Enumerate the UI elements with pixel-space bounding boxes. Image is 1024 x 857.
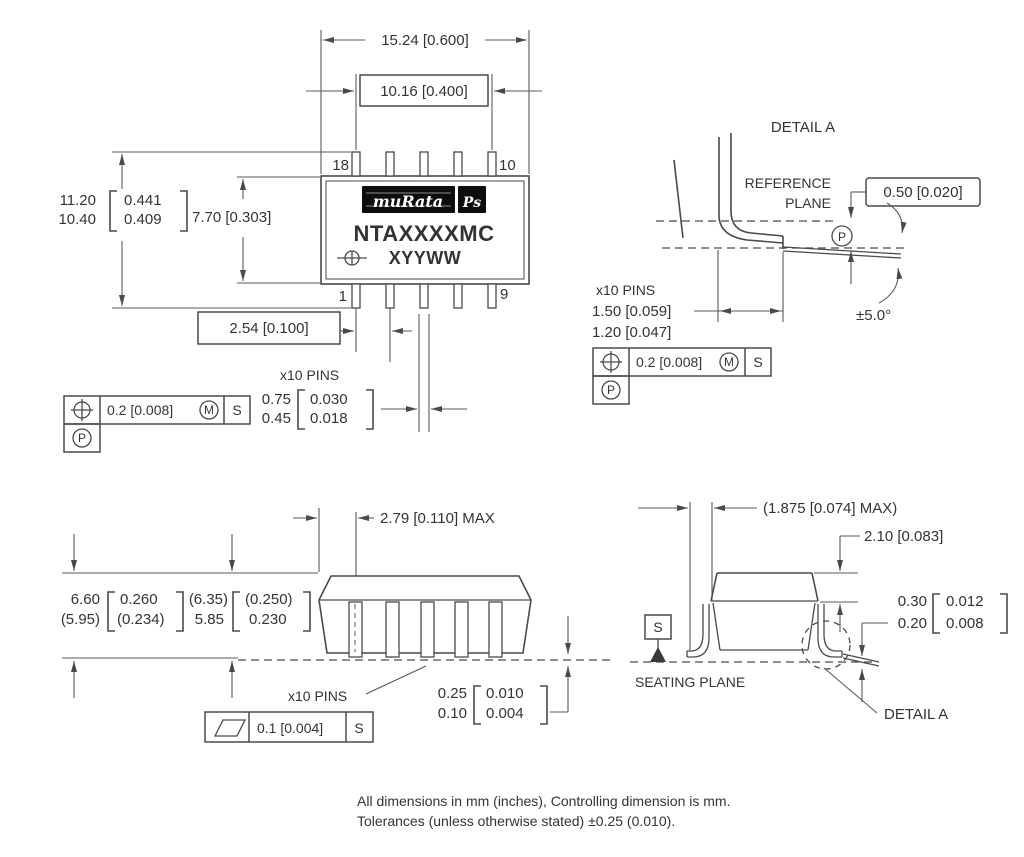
- dim-overall-height-in-min: 0.409: [124, 211, 162, 228]
- side-view-extension-lines: [690, 502, 858, 650]
- fcf-position-top-view: 0.2 [0.008] M S P: [64, 396, 250, 452]
- pin-number-9: 9: [500, 286, 508, 303]
- dim-total-mm-min: (5.95): [61, 611, 100, 628]
- dim-body-only-height: (6.35) 5.85 (0.250) 0.230: [189, 534, 310, 698]
- dim-edge-to-pin-label: 2.79 [0.110] MAX: [380, 510, 495, 527]
- front-view-extension-lines: [62, 508, 356, 658]
- pins-count-label: x10 PINS: [280, 367, 339, 383]
- fcf-tolerance: 0.2 [0.008]: [107, 402, 173, 418]
- dim-cap-height: 2.10 [0.083]: [840, 528, 943, 632]
- fcf-flatness: 0.1 [0.004] S: [205, 712, 373, 742]
- dim-total-in-max: 0.260: [120, 591, 158, 608]
- logo-suffix-text: Ps: [462, 195, 482, 211]
- dim-plane-offset-label: 0.50 [0.020]: [883, 184, 962, 201]
- dim-overall-height-mm-max: 11.20: [60, 192, 96, 209]
- fcf-flatness-datum: S: [354, 720, 363, 736]
- dim-overall-height-mm-min: 10.40: [58, 211, 96, 228]
- svg-text:P: P: [78, 431, 86, 445]
- detail-a-title: DETAIL A: [771, 119, 835, 136]
- dim-lead-thick-in-max: 0.012: [946, 593, 984, 610]
- dim-lead-thickness: 0.30 0.20 0.012 0.008: [862, 593, 1007, 702]
- drawing-notes: All dimensions in mm (inches), Controlli…: [357, 793, 730, 829]
- note-line-2: Tolerances (unless otherwise stated) ±0.…: [357, 813, 675, 829]
- datum-s-label: S: [653, 619, 662, 635]
- dim-standoff-in-max: 0.010: [486, 685, 524, 702]
- dim-overall-height-in-max: 0.441: [124, 192, 162, 209]
- dim-plane-offset: 0.50 [0.020]: [851, 178, 980, 284]
- svg-text:P: P: [838, 230, 846, 244]
- dim-foot-min-label: 1.20 [0.047]: [592, 324, 671, 341]
- package-dimension-drawing: muRata Ps NTAXXXXMC XYYWW 18 10 1 9 15.2…: [0, 0, 1024, 857]
- dim-pin-pitch: 2.54 [0.100]: [198, 312, 412, 344]
- detail-a-lead-geometry: [656, 133, 908, 258]
- dim-pin-width-in-max: 0.030: [310, 391, 348, 408]
- pin-number-18: 18: [332, 157, 349, 174]
- projected-tolerance-icon: P: [73, 429, 91, 447]
- seating-plane-label: SEATING PLANE: [635, 674, 745, 690]
- angle-tolerance-label: ±5.0°: [856, 307, 891, 324]
- dim-body-in-max: (0.250): [245, 591, 293, 608]
- marking-code: XYYWW: [389, 248, 462, 268]
- dim-overall-width-label: 15.24 [0.600]: [381, 32, 469, 49]
- dim-edge-to-pin: 2.79 [0.110] MAX: [293, 510, 495, 527]
- detail-a-reference: DETAIL A: [824, 668, 948, 723]
- projected-plane-icon: P: [832, 226, 852, 246]
- side-view-gullwing-pins: [687, 604, 879, 666]
- dim-total-in-min: (0.234): [117, 611, 165, 628]
- fcf-position-detail-a: 0.2 [0.008] M S P: [593, 348, 771, 404]
- top-view: muRata Ps NTAXXXXMC XYYWW 18 10 1 9 15.2…: [58, 30, 542, 452]
- fcf-flatness-tolerance: 0.1 [0.004]: [257, 720, 323, 736]
- dim-overall-height: 11.20 10.40 0.441 0.409: [58, 154, 187, 306]
- reference-plane-label-2: PLANE: [785, 195, 831, 211]
- dim-body-height-label: 7.70 [0.303]: [192, 209, 271, 226]
- dim-overall-width: 15.24 [0.600]: [323, 32, 527, 49]
- dim-lead-projection-label: (1.875 [0.074] MAX): [763, 500, 897, 517]
- logo-text: muRata: [373, 192, 443, 211]
- mmc-modifier-icon: M: [720, 353, 738, 371]
- dim-standoff-mm-max: 0.25: [438, 685, 467, 702]
- pins-count-label-front: x10 PINS: [288, 688, 347, 704]
- dim-foot-length: x10 PINS 1.50 [0.059] 1.20 [0.047]: [592, 250, 783, 341]
- pins-leader: x10 PINS: [288, 666, 426, 704]
- position-symbol-icon: [600, 351, 622, 373]
- dim-pin-width-mm-max: 0.75: [262, 391, 291, 408]
- dim-standoff-mm-min: 0.10: [438, 705, 467, 722]
- svg-text:M: M: [204, 403, 214, 417]
- note-line-1: All dimensions in mm (inches), Controlli…: [357, 793, 730, 809]
- position-symbol-icon: [71, 399, 93, 421]
- dim-body-height: 7.70 [0.303]: [192, 179, 271, 281]
- dim-pin-width-in-min: 0.018: [310, 410, 348, 427]
- dim-pin-pitch-label: 2.54 [0.100]: [229, 320, 308, 337]
- dim-lead-thick-in-min: 0.008: [946, 615, 984, 632]
- dim-lead-projection: (1.875 [0.074] MAX): [638, 500, 897, 517]
- dim-lead-thick-mm-min: 0.20: [898, 615, 927, 632]
- murata-logo: muRata Ps: [362, 186, 486, 213]
- dim-standoff-in-min: 0.004: [486, 705, 524, 722]
- front-view: 2.79 [0.110] MAX 6.60 (5.95) 0.260 (0.23…: [61, 508, 612, 742]
- dim-foot-max-label: 1.50 [0.059]: [592, 303, 671, 320]
- dim-pin-span: 10.16 [0.400]: [306, 75, 542, 106]
- side-view: (1.875 [0.074] MAX) S: [630, 500, 1007, 723]
- flatness-symbol-icon: [215, 720, 245, 736]
- svg-text:P: P: [607, 383, 615, 397]
- dim-cap-height-label: 2.10 [0.083]: [864, 528, 943, 545]
- dim-total-height: 6.60 (5.95) 0.260 (0.234): [61, 534, 183, 698]
- dim-lead-thick-mm-max: 0.30: [898, 593, 927, 610]
- dim-pin-width-mm-min: 0.45: [262, 410, 291, 427]
- fcf-datum: S: [232, 402, 241, 418]
- dim-body-in-min: 0.230: [249, 611, 287, 628]
- pin-number-10: 10: [499, 157, 516, 174]
- mmc-modifier-icon: M: [200, 401, 218, 419]
- mechanical-drawing-page: muRata Ps NTAXXXXMC XYYWW 18 10 1 9 15.2…: [0, 0, 1024, 857]
- svg-text:M: M: [724, 355, 734, 369]
- detail-a-view: DETAIL A REFERENCE PLANE P 0.50 [0.020]: [592, 119, 980, 404]
- pin-number-1: 1: [339, 288, 347, 305]
- datum-triangle-icon: [650, 647, 666, 662]
- fcf-tolerance: 0.2 [0.008]: [636, 354, 702, 370]
- reference-plane-label-1: REFERENCE: [745, 175, 831, 191]
- detail-a-ref-label: DETAIL A: [884, 706, 948, 723]
- dim-pin-width: x10 PINS 0.75 0.45 0.030 0.018: [262, 367, 467, 429]
- dim-body-mm-max: (6.35): [189, 591, 228, 608]
- dim-lead-angle: ±5.0°: [856, 203, 902, 324]
- datum-s-flag: S: [645, 615, 671, 662]
- dim-total-mm-max: 6.60: [71, 591, 100, 608]
- projected-tolerance-icon: P: [602, 381, 620, 399]
- dim-body-mm-min: 5.85: [195, 611, 224, 628]
- part-number: NTAXXXXMC: [354, 221, 495, 246]
- side-body-outline: [711, 573, 818, 650]
- fcf-datum: S: [753, 354, 762, 370]
- dim-pin-span-label: 10.16 [0.400]: [380, 83, 468, 100]
- pins-count-label-detail: x10 PINS: [596, 282, 655, 298]
